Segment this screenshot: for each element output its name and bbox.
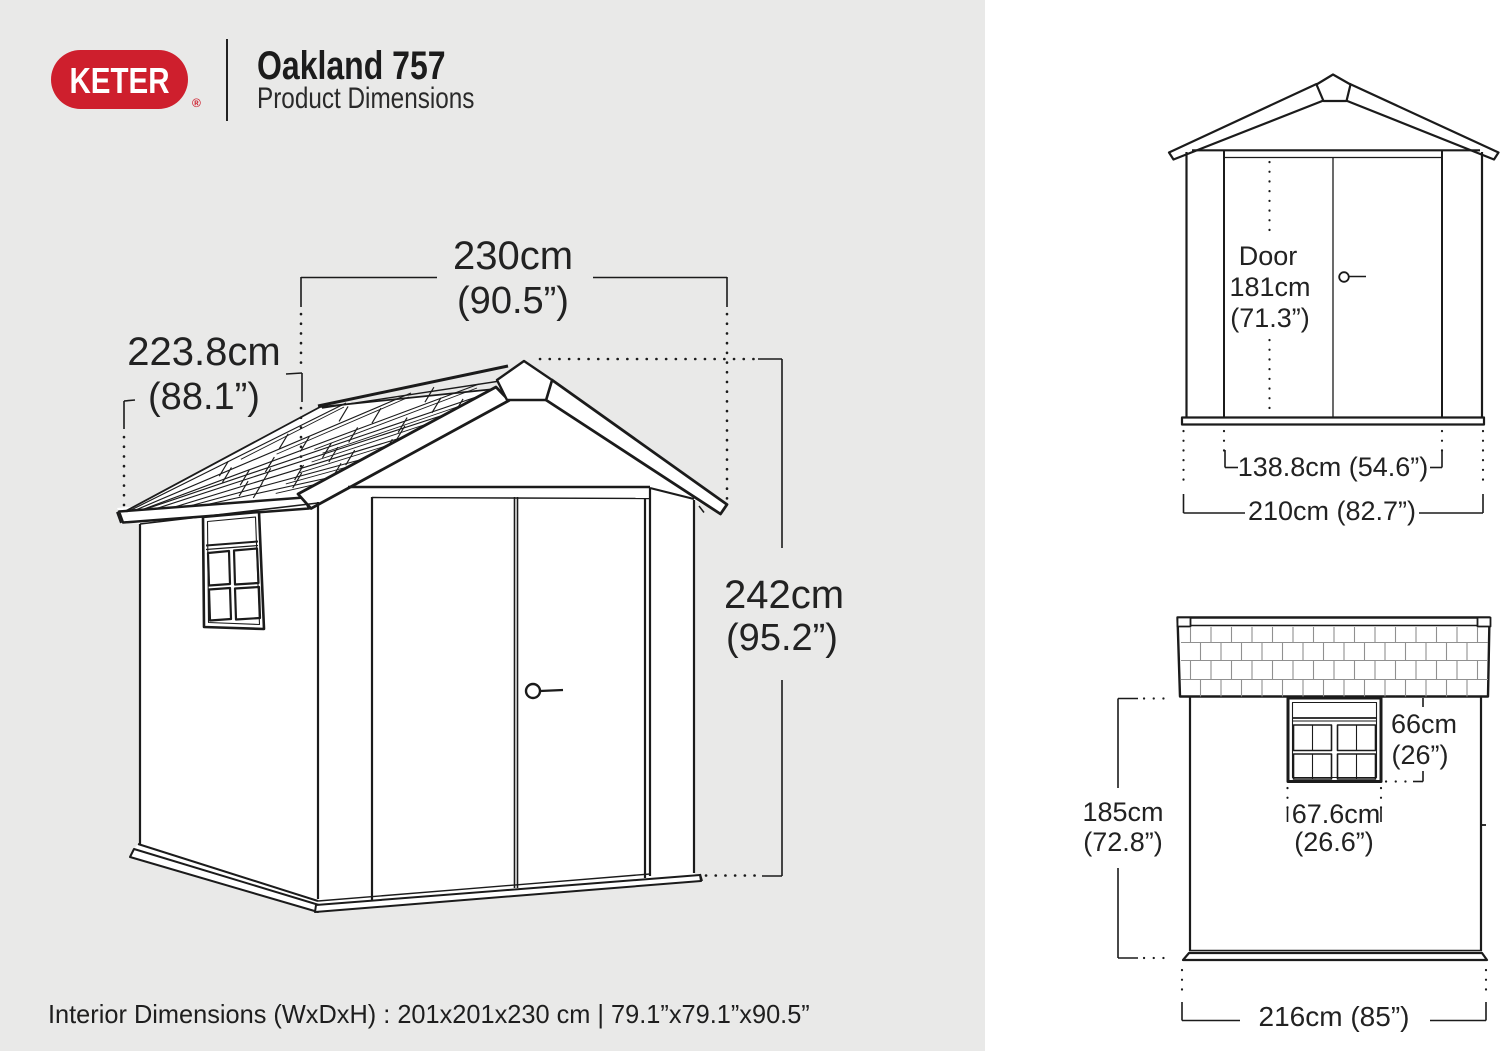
svg-text:66cm: 66cm bbox=[1391, 709, 1457, 739]
svg-text:(26”): (26”) bbox=[1391, 740, 1448, 770]
svg-text:67.6cm: 67.6cm bbox=[1292, 799, 1381, 829]
svg-text:Door: Door bbox=[1239, 241, 1298, 271]
svg-text:(95.2”): (95.2”) bbox=[726, 617, 838, 659]
svg-text:(26.6”): (26.6”) bbox=[1294, 827, 1374, 857]
svg-text:138.8cm (54.6”): 138.8cm (54.6”) bbox=[1238, 452, 1429, 482]
svg-text:185cm: 185cm bbox=[1082, 797, 1163, 827]
svg-text:(90.5”): (90.5”) bbox=[457, 280, 569, 322]
svg-text:(88.1”): (88.1”) bbox=[148, 376, 260, 418]
svg-text:242cm: 242cm bbox=[724, 573, 844, 617]
svg-text:210cm (82.7”): 210cm (82.7”) bbox=[1248, 496, 1416, 526]
svg-text:216cm (85”): 216cm (85”) bbox=[1259, 1001, 1410, 1032]
svg-text:230cm: 230cm bbox=[453, 234, 573, 278]
svg-text:181cm: 181cm bbox=[1229, 272, 1310, 302]
svg-text:223.8cm: 223.8cm bbox=[127, 330, 280, 374]
svg-text:(71.3”): (71.3”) bbox=[1230, 303, 1310, 333]
svg-text:(72.8”): (72.8”) bbox=[1083, 827, 1163, 857]
